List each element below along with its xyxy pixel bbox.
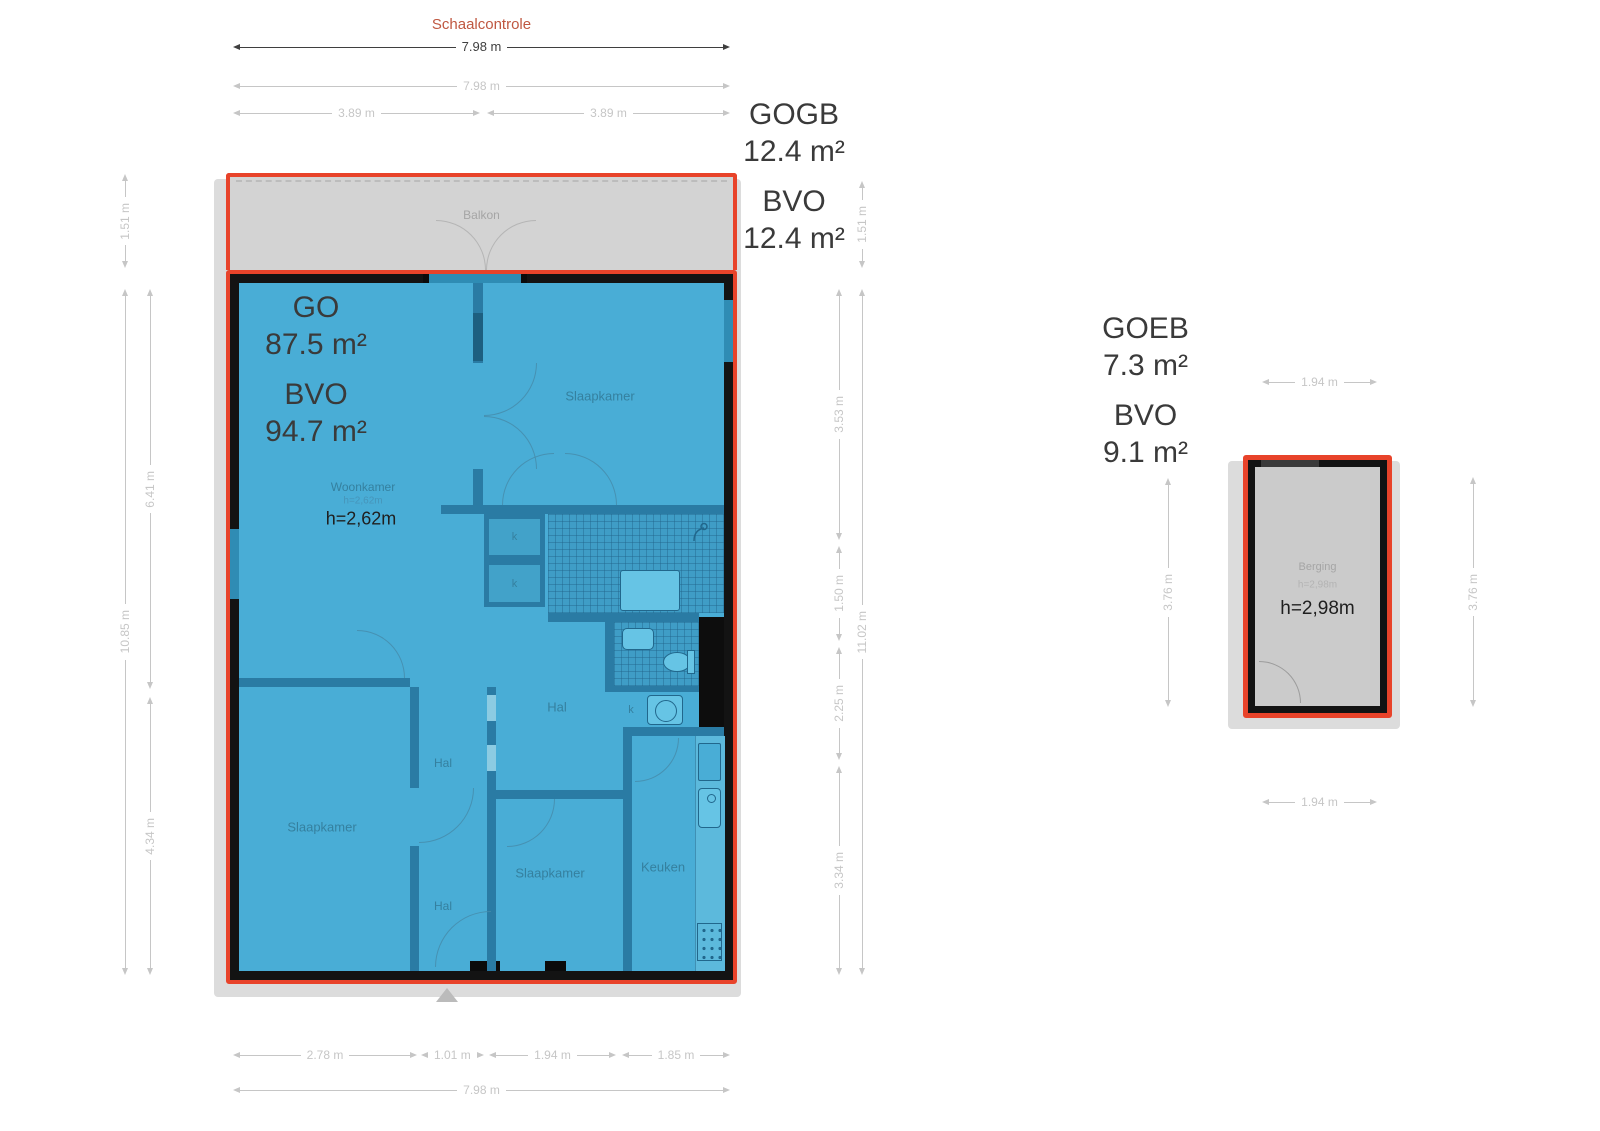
boiler <box>647 695 683 725</box>
livingroom-window <box>230 529 239 599</box>
entrance-marker-icon <box>436 988 458 1002</box>
door-arc <box>357 630 405 678</box>
gogb-label: GOGB <box>738 96 850 133</box>
woonkamer-height: h=2,62m <box>326 509 397 530</box>
dim-right-balcony: 1.51 m <box>854 181 870 268</box>
wall-bathroom-toilet <box>548 613 699 622</box>
dim-left-upper: 6.41 m <box>142 289 158 689</box>
wall-living-bedroom-left <box>239 678 410 687</box>
dim-top-right-half: 3.89 m <box>487 105 730 121</box>
main-floorplan: GO 87.5 m² BVO 94.7 m² k k <box>226 270 737 984</box>
bvo-balcony-value: 12.4 m² <box>738 220 850 257</box>
scale-check-title: Schaalcontrole <box>233 16 730 33</box>
balcony-railing <box>236 180 727 182</box>
dim-bottom-seg2: 1.01 m <box>421 1047 483 1063</box>
gogb-value: 12.4 m² <box>738 133 850 170</box>
wall-opening-dashed <box>487 745 496 771</box>
shaft <box>699 617 724 737</box>
wall-bedroom-bathroom <box>441 505 724 514</box>
storage-area-labels: GOEB 7.3 m² BVO 9.1 m² <box>1078 310 1213 471</box>
closet: k <box>484 560 545 607</box>
dim-left-lower: 4.34 m <box>142 697 158 975</box>
goeb-value: 7.3 m² <box>1078 347 1213 384</box>
door-opening <box>473 363 483 469</box>
wall-window-segment <box>473 313 483 361</box>
bedroom-window <box>724 300 733 362</box>
door-opening <box>410 788 419 846</box>
dim-bottom-full: 7.98 m <box>233 1082 730 1098</box>
scale-check-dimension: 7.98 m <box>233 39 730 55</box>
wall-opening-dashed <box>487 695 496 721</box>
dim-left-balcony: 1.51 m <box>117 174 133 268</box>
balcony-door-window <box>429 274 521 283</box>
scale-check-value: 7.98 m <box>456 39 508 55</box>
wall-bedroom-mid <box>496 790 623 799</box>
closet: k <box>484 514 545 560</box>
cooktop <box>697 923 722 961</box>
bvo-storage-value: 9.1 m² <box>1078 434 1213 471</box>
balcony-door-arc-right <box>486 220 536 270</box>
floorplan-canvas: Schaalcontrole 7.98 m 7.98 m 3.89 m 3.89… <box>0 0 1600 1131</box>
dim-storage-right: 3.76 m <box>1465 477 1481 707</box>
closet-label: k <box>512 531 518 543</box>
dim-bottom-seg4: 1.85 m <box>622 1047 730 1063</box>
woonkamer-height-small: h=2,62m <box>343 496 382 507</box>
balcony-area-labels: GOGB 12.4 m² BVO 12.4 m² <box>738 96 850 257</box>
bathtub <box>620 570 680 611</box>
bvo-value: 94.7 m² <box>241 413 391 450</box>
wall-boiler-closet <box>605 686 699 692</box>
wall-kitchen-top <box>623 727 724 736</box>
entrance-post <box>545 961 566 971</box>
wall-kitchen-left <box>623 736 632 971</box>
entrance-door-arc <box>435 911 491 967</box>
dim-storage-bottom: 1.94 m <box>1262 794 1377 810</box>
sink-drain <box>707 794 716 803</box>
dim-top-full: 7.98 m <box>233 78 730 94</box>
go-value: 87.5 m² <box>241 326 391 363</box>
room-label-hal: Hal <box>547 700 567 715</box>
washbasin <box>622 628 654 650</box>
go-label: GO <box>241 289 391 326</box>
storage-door-slot <box>1261 460 1319 467</box>
boiler-drum <box>655 700 677 722</box>
main-floorplan-walls: GO 87.5 m² BVO 94.7 m² k k <box>230 274 733 980</box>
arrow-right-icon <box>723 44 730 50</box>
dim-storage-left: 3.76 m <box>1160 478 1176 707</box>
bvo-label: BVO <box>241 376 391 413</box>
bvo-storage-label: BVO <box>1078 397 1213 434</box>
kitchen-sink <box>698 788 721 828</box>
dim-storage-top: 1.94 m <box>1262 374 1377 390</box>
balcony-door-arc-left <box>436 220 486 270</box>
storage-unit-walls: Berging h=2,98m h=2,98m <box>1248 460 1387 713</box>
door-arc <box>507 799 555 847</box>
main-area-labels: GO 87.5 m² BVO 94.7 m² <box>241 289 391 450</box>
balcony-label: Balkon <box>463 208 500 222</box>
fridge <box>698 743 721 781</box>
arrow-left-icon <box>233 44 240 50</box>
closet-label: k <box>628 704 634 716</box>
room-label-keuken: Keuken <box>641 860 685 875</box>
wall-post <box>423 274 429 283</box>
room-label-slaapkamer-left: Slaapkamer <box>287 820 356 835</box>
goeb-label: GOEB <box>1078 310 1213 347</box>
storage-unit: Berging h=2,98m h=2,98m <box>1243 455 1392 718</box>
balcony: Balkon <box>226 173 737 270</box>
closet-label: k <box>512 578 518 590</box>
room-label-slaapkamer-top: Slaapkamer <box>565 389 634 404</box>
dim-left-total: 10.85 m <box>117 289 133 975</box>
dim-top-left-half: 3.89 m <box>233 105 480 121</box>
dim-right-seg2: 1.50 m <box>831 546 847 641</box>
dim-bottom-seg1: 2.78 m <box>233 1047 417 1063</box>
dim-right-seg1: 3.53 m <box>831 289 847 540</box>
double-door-arc <box>484 363 537 416</box>
bvo-balcony-label: BVO <box>738 183 850 220</box>
storage-door-arc <box>1259 661 1301 703</box>
dim-bottom-seg3: 1.94 m <box>489 1047 616 1063</box>
dim-right-seg3: 2.25 m <box>831 647 847 760</box>
room-label-hal-bottom: Hal <box>434 899 452 913</box>
room-label-slaapkamer-mid: Slaapkamer <box>515 866 584 881</box>
berging-height-small: h=2,98m <box>1298 580 1337 591</box>
toilet-tank <box>687 650 695 674</box>
kitchen-door-arc <box>635 738 679 782</box>
dim-right-total: 11.02 m <box>854 289 870 975</box>
dim-right-seg4: 3.34 m <box>831 766 847 975</box>
closet-door-arc <box>565 453 617 505</box>
wall-toilet <box>605 622 614 686</box>
room-label-berging: Berging <box>1299 561 1337 573</box>
room-label-hal-mid: Hal <box>434 756 452 770</box>
berging-height: h=2,98m <box>1280 598 1354 620</box>
shower-icon <box>691 521 709 543</box>
room-label-woonkamer: Woonkamer <box>331 480 395 494</box>
door-arc <box>419 788 474 843</box>
wall-post <box>521 274 527 283</box>
